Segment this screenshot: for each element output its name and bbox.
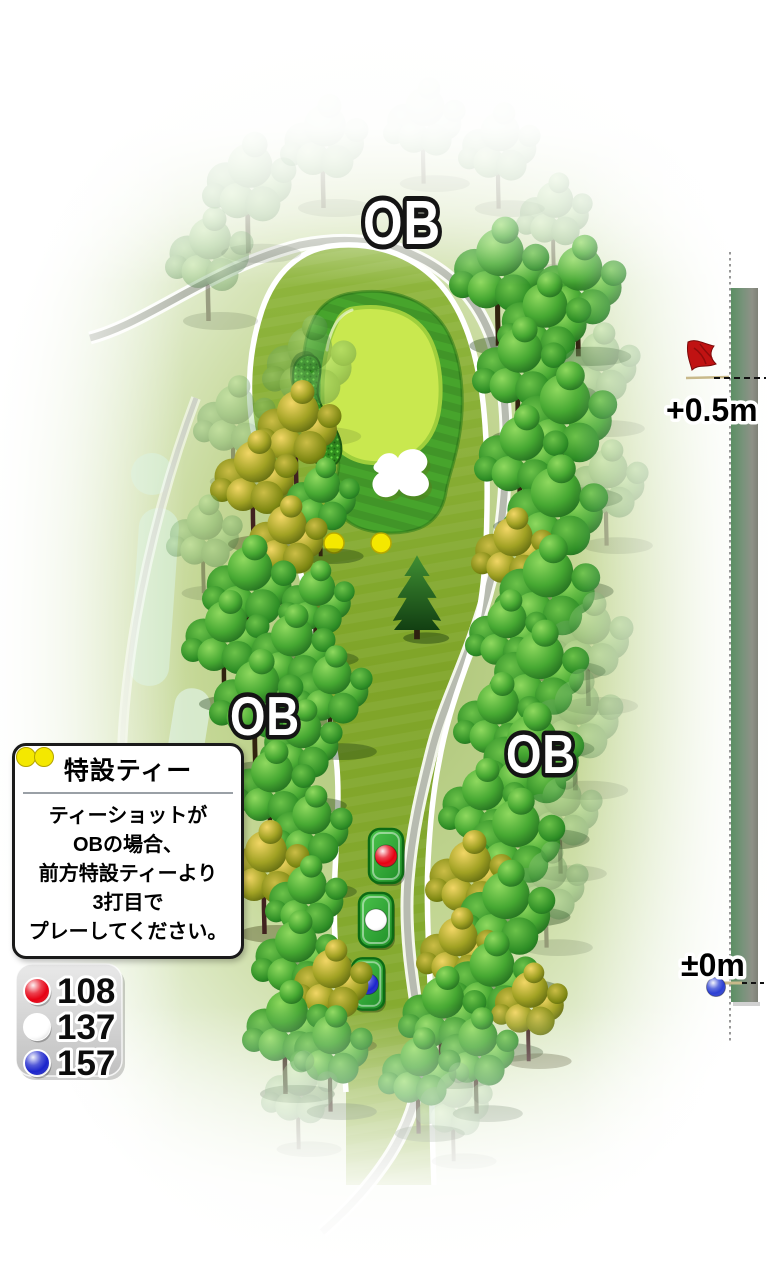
hole-map: +0.5m ±0m OB OB OB 108 137 — [0, 0, 768, 1280]
special-tee-title-text: 特設ティー — [64, 751, 193, 787]
special-tee-dots-icon — [15, 746, 55, 768]
special-tee-text-line: 3打目で — [15, 889, 241, 918]
green-elevation-label: +0.5m — [666, 392, 758, 428]
special-tee-dot — [371, 533, 391, 553]
special-tee-title: 特設ティー — [15, 751, 241, 787]
ob-label-top: OB — [363, 189, 441, 258]
ob-label-right: OB — [506, 723, 576, 785]
red-tee-marker — [369, 829, 405, 886]
white-tee-marker — [359, 893, 395, 950]
distance-row-blue: 157 — [24, 1044, 115, 1083]
special-tee-text-line: ティーショットが — [15, 802, 241, 831]
tee-elevation-label: ±0m — [681, 947, 745, 983]
bunker — [372, 449, 428, 497]
distance-legend: 108 137 157 — [16, 964, 125, 1083]
distance-value: 137 — [57, 1008, 115, 1047]
ob-label-left: OB — [230, 685, 300, 747]
distance-value: 157 — [57, 1044, 115, 1083]
note-divider — [23, 792, 233, 795]
special-tee-text-line: 前方特設ティーより — [15, 860, 241, 889]
distance-value: 108 — [57, 972, 115, 1011]
hole-map-canvas: +0.5m ±0m OB OB OB 108 137 — [0, 0, 768, 1280]
special-tee-note: 特設ティー ティーショットが OBの場合、 前方特設ティーより 3打目で プレー… — [12, 743, 244, 959]
distance-row-red: 108 — [24, 972, 115, 1011]
special-tee-text-line: プレーしてください。 — [15, 918, 241, 947]
special-tee-text-line: OBの場合、 — [15, 831, 241, 860]
distance-row-white: 137 — [24, 1008, 115, 1047]
